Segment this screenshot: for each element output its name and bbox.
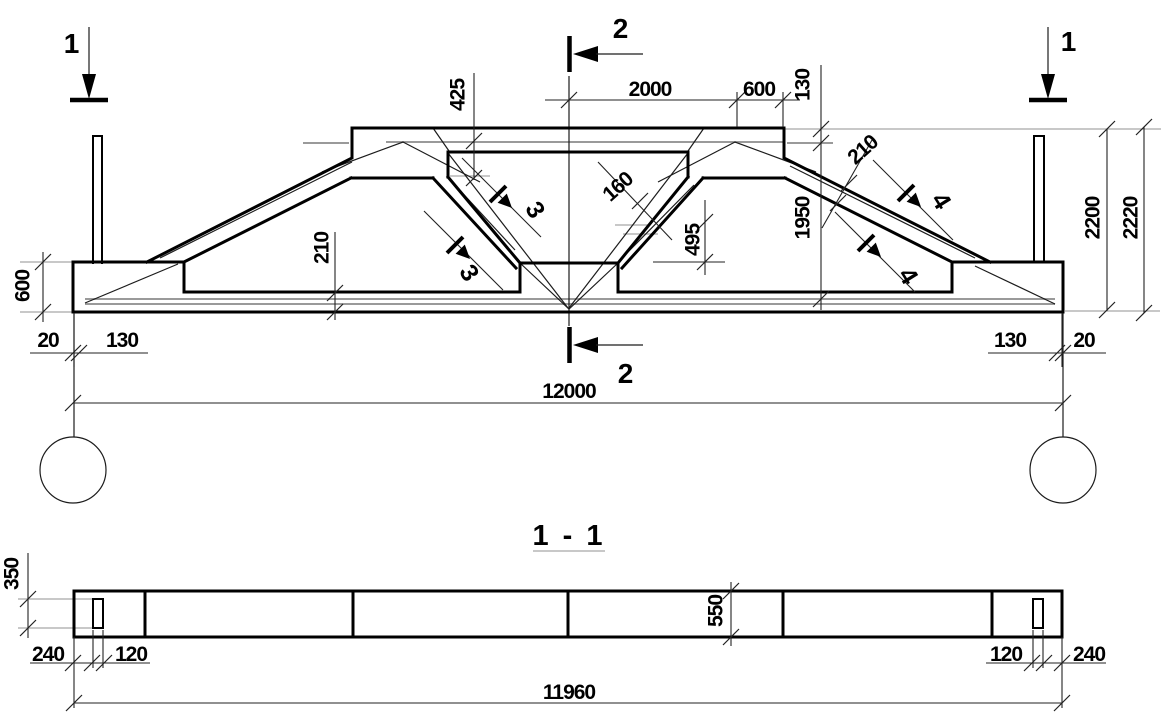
dim-2000: 2000: [629, 78, 672, 101]
dim-11960: 11960: [543, 681, 596, 704]
section-1-right-arrow: [1041, 74, 1055, 99]
dim-20-right: 20: [1073, 329, 1095, 352]
dim-20-left: 20: [37, 329, 59, 352]
loop-hole-right: [1033, 599, 1043, 628]
dim-495: 495: [682, 223, 705, 256]
loop-hole-left: [93, 599, 103, 628]
dim-600-end: 600: [12, 270, 35, 302]
dim-tick: [841, 175, 857, 191]
section-2-top-arrow: [573, 46, 598, 62]
drawing-canvas: 1 1 2 2 3 3 4 4 2000 600 130 425 160 210…: [0, 0, 1161, 718]
thin-lines: [40, 76, 1096, 503]
dim-600-top: 600: [743, 78, 775, 101]
axis-bubble-left: [40, 437, 106, 503]
section-1-right-label: 1: [1061, 26, 1076, 57]
drawing-page: 1 1 2 2 3 3 4 4 2000 600 130 425 160 210…: [0, 0, 1161, 718]
dim-1950: 1950: [792, 196, 815, 239]
left-strut-edge-a: [448, 177, 520, 263]
dim-160: 160: [598, 168, 637, 207]
dim-120-right: 120: [990, 643, 1022, 666]
section-1-left-label: 1: [64, 28, 79, 59]
section-2-bottom-label: 2: [618, 358, 633, 389]
central-opening: [448, 152, 688, 177]
dim-240-left: 240: [32, 643, 64, 666]
dim-120-left: 120: [115, 643, 147, 666]
dim-2220: 2220: [1120, 196, 1143, 239]
dim-130-step: 130: [792, 69, 815, 101]
dim-210-bottom: 210: [311, 232, 334, 264]
section-1-left-arrow: [82, 74, 96, 99]
section-2-top-label: 2: [613, 13, 628, 44]
section-view: [74, 591, 1062, 637]
left-strut-edge-b: [433, 178, 516, 268]
rebar-and-extension-lines: [18, 129, 1161, 628]
section-2-bottom-arrow: [573, 337, 598, 353]
detail-3-lower-label: 3: [453, 260, 484, 287]
dim-12000: 12000: [542, 380, 596, 403]
truss-outline: [73, 128, 1063, 312]
detail-4-upper-label: 4: [925, 188, 956, 215]
lifting-loop-left: [93, 136, 102, 263]
dim-2200: 2200: [1082, 196, 1105, 239]
dim-130-right: 130: [994, 329, 1026, 352]
axis-bubble-right: [1030, 437, 1096, 503]
dim-550: 550: [705, 595, 728, 627]
lifting-loop-right: [1034, 136, 1044, 262]
dim-350: 350: [1, 558, 24, 590]
detail-3-upper-label: 3: [519, 197, 550, 224]
dim-425: 425: [447, 78, 470, 111]
dim-130-left: 130: [106, 329, 138, 352]
section-view-title: 1 - 1: [532, 520, 605, 552]
dim-240-right: 240: [1073, 643, 1105, 666]
